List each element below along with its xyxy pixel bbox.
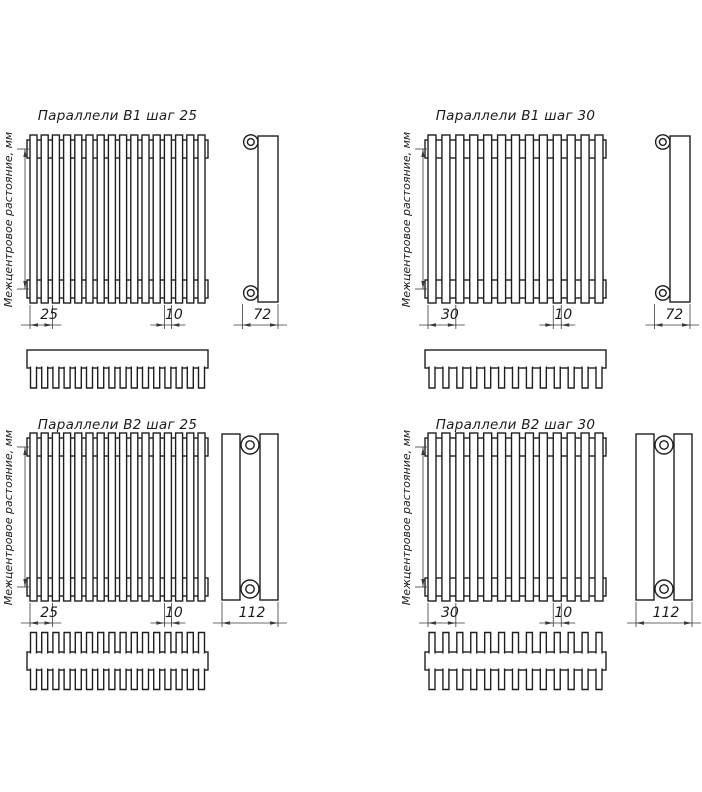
figure-title: Параллели В1 шаг 30: [428, 108, 603, 124]
figure-title: Параллели В2 шаг 30: [428, 417, 603, 433]
axis-label: Межцентровое растояние, мм: [395, 137, 419, 301]
axis-label-text: Межцентровое растояние, мм: [3, 131, 16, 306]
figure-title: Параллели В1 шаг 25: [30, 108, 205, 124]
axis-label-text: Межцентровое растояние, мм: [3, 429, 16, 604]
figure-title: Параллели В2 шаг 25: [30, 417, 205, 433]
tube-width-dimension-label: 10: [541, 307, 585, 323]
axis-label: Межцентровое растояние, мм: [0, 435, 21, 599]
tube-width-dimension-label: 10: [541, 605, 585, 621]
depth-dimension-label: 112: [644, 605, 688, 621]
depth-dimension-label: 112: [230, 605, 274, 621]
axis-label-text: Межцентровое растояние, мм: [401, 429, 414, 604]
axis-label-text: Межцентровое растояние, мм: [401, 131, 414, 306]
axis-label: Межцентровое растояние, мм: [395, 435, 419, 599]
step-dimension-label: 25: [27, 307, 71, 323]
tube-width-dimension-label: 10: [152, 307, 196, 323]
depth-dimension-label: 72: [652, 307, 696, 323]
step-dimension-label: 30: [428, 605, 472, 621]
step-dimension-label: 25: [27, 605, 71, 621]
depth-dimension-label: 72: [240, 307, 284, 323]
axis-label: Межцентровое растояние, мм: [0, 137, 21, 301]
radiator-drawing-sheet: Параллели В1 шаг 25 Межцентровое растоян…: [0, 0, 702, 792]
tube-width-dimension-label: 10: [152, 605, 196, 621]
step-dimension-label: 30: [428, 307, 472, 323]
